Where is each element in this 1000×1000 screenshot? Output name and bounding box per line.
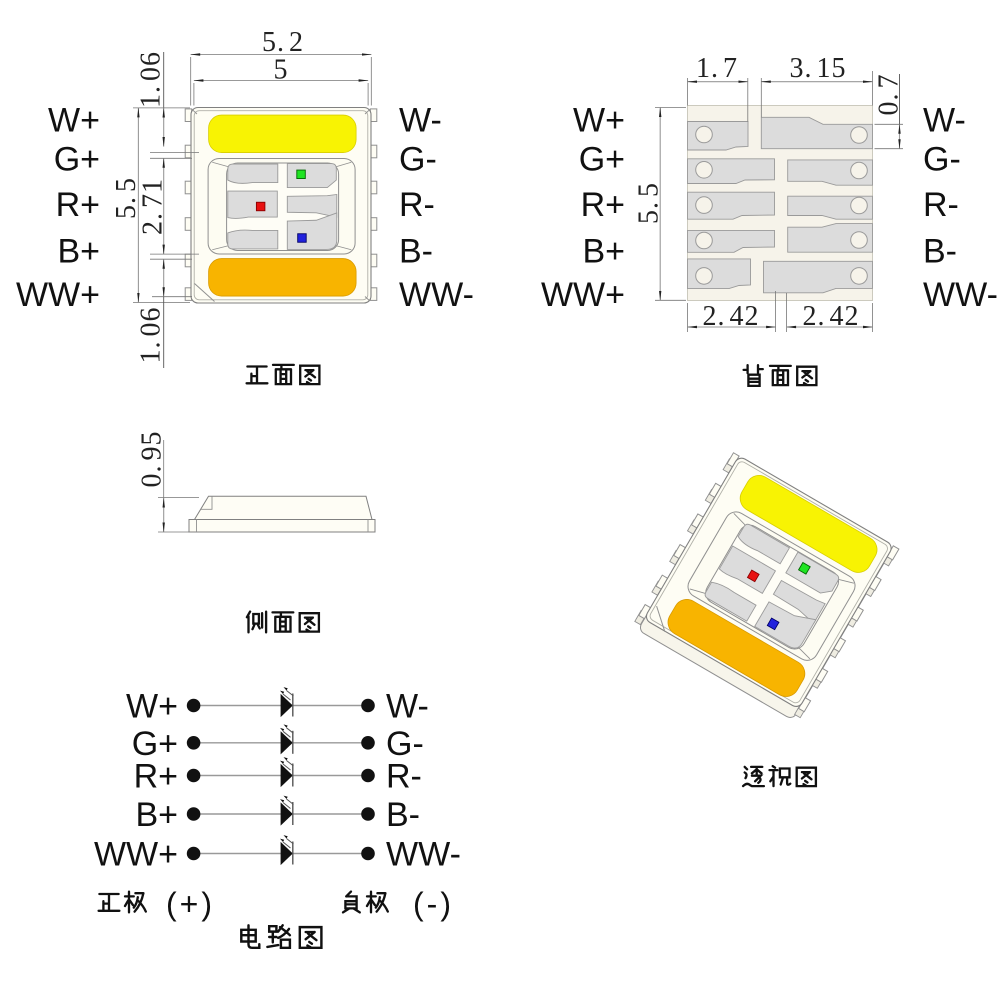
svg-text:5.2: 5.2 [262, 27, 304, 58]
svg-text:R+: R+ [581, 186, 625, 224]
svg-text:5: 5 [274, 55, 289, 86]
svg-text:W+: W+ [48, 102, 100, 140]
svg-text:(+): (+) [166, 886, 215, 922]
svg-text:0.95: 0.95 [137, 431, 168, 488]
svg-text:WW-: WW- [399, 276, 474, 314]
svg-text:1.7: 1.7 [696, 53, 738, 84]
svg-text:W-: W- [399, 102, 442, 140]
svg-text:G-: G- [923, 141, 961, 179]
svg-text:2.71: 2.71 [138, 178, 169, 235]
svg-text:R-: R- [399, 186, 435, 224]
svg-text:2.42: 2.42 [803, 301, 860, 332]
svg-text:1.06: 1.06 [136, 307, 167, 364]
svg-text:G+: G+ [579, 141, 625, 179]
svg-text:WW-: WW- [386, 836, 461, 874]
svg-text:R-: R- [386, 758, 422, 796]
svg-text:R+: R+ [56, 186, 100, 224]
svg-text:3.15: 3.15 [790, 53, 847, 84]
svg-text:WW+: WW+ [16, 276, 100, 314]
svg-text:WW+: WW+ [94, 836, 178, 874]
svg-text:1.06: 1.06 [136, 51, 167, 108]
svg-text:B+: B+ [57, 233, 100, 271]
svg-text:W-: W- [923, 102, 966, 140]
svg-text:R+: R+ [134, 758, 178, 796]
svg-text:B-: B- [386, 796, 420, 834]
svg-text:WW-: WW- [923, 276, 998, 314]
svg-text:W-: W- [386, 688, 429, 726]
svg-text:B+: B+ [582, 233, 625, 271]
svg-text:G-: G- [399, 141, 437, 179]
svg-text:(-): (-) [413, 886, 454, 922]
svg-text:B-: B- [923, 233, 957, 271]
svg-text:R-: R- [923, 186, 959, 224]
svg-text:W+: W+ [573, 102, 625, 140]
svg-text:B-: B- [399, 233, 433, 271]
svg-text:2.42: 2.42 [703, 301, 760, 332]
svg-text:5.5: 5.5 [634, 182, 665, 224]
svg-text:G+: G+ [54, 141, 100, 179]
svg-text:W+: W+ [126, 688, 178, 726]
svg-text:B+: B+ [135, 796, 178, 834]
svg-text:WW+: WW+ [541, 276, 625, 314]
svg-text:0.7: 0.7 [874, 74, 905, 116]
